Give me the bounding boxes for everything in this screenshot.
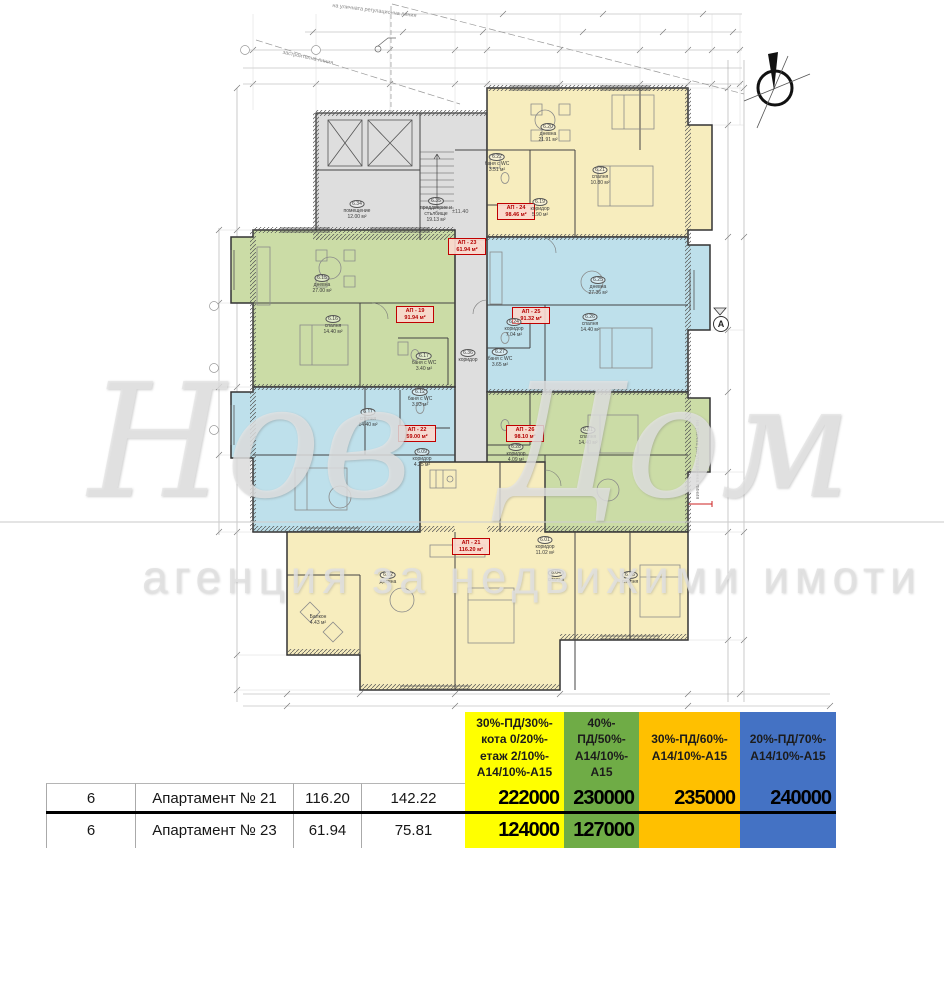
apartment-label-19: АП - 19 91.94 м² xyxy=(396,306,434,323)
row1-name: Апартамент № 21 xyxy=(135,783,293,813)
row2-area-gross: 75.81 xyxy=(361,813,465,848)
row2-price-orange xyxy=(639,813,740,848)
apartment-label-24: АП - 24 98.46 м² xyxy=(497,203,535,220)
row1-price-orange: 235000 xyxy=(639,783,740,813)
plan-header-orange: 30%-ПД/60%- А14/10%-А15 xyxy=(639,712,740,783)
north-arrow-icon xyxy=(744,52,810,128)
row1-price-blue: 240000 xyxy=(740,783,836,813)
core-block xyxy=(316,113,487,240)
row2-area-net: 61.94 xyxy=(293,813,361,848)
row1-price-green: 230000 xyxy=(564,783,639,813)
apartment-label-26: АП - 26 98.10 м² xyxy=(506,425,544,442)
row1-area-net: 116.20 xyxy=(293,783,361,813)
level-mark: ±11.40 xyxy=(452,209,468,215)
apartment-label-25: АП - 25 91.32 м² xyxy=(512,307,550,324)
row2-name: Апартамент № 23 xyxy=(135,813,293,848)
plan-header-blue: 20%-ПД/70%- А14/10%-А15 xyxy=(740,712,836,783)
apartment-label-23: АП - 23 61.94 м² xyxy=(448,238,486,255)
plan-header-yellow: 30%-ПД/30%- кота 0/20%- етаж 2/10%- А14/… xyxy=(465,712,564,783)
apartment-label-22: АП - 22 59.00 м² xyxy=(398,425,436,442)
floor-plan-drawing xyxy=(0,0,944,1000)
row1-floor: 6 xyxy=(46,783,135,813)
table-row-divider xyxy=(46,811,836,814)
section-marker-a: А xyxy=(713,316,729,332)
regulation-line-right-label: на улична регулационна линия xyxy=(694,420,700,499)
row2-floor: 6 xyxy=(46,813,135,848)
section-marker-triangle xyxy=(714,308,726,315)
apartment-label-21: АП - 21 116.20 м² xyxy=(452,538,490,555)
plan-header-green: 40%- ПД/50%- А14/10%- А15 xyxy=(564,712,639,783)
corridor-block xyxy=(455,240,487,462)
row1-area-gross: 142.22 xyxy=(361,783,465,813)
row2-price-green: 127000 xyxy=(564,813,639,848)
floor-plan-page: АП - 19 91.94 м² АП - 21 116.20 м² АП - … xyxy=(0,0,944,1000)
row2-price-blue xyxy=(740,813,836,848)
row1-price-yellow: 222000 xyxy=(465,783,564,813)
row2-price-yellow: 124000 xyxy=(465,813,564,848)
